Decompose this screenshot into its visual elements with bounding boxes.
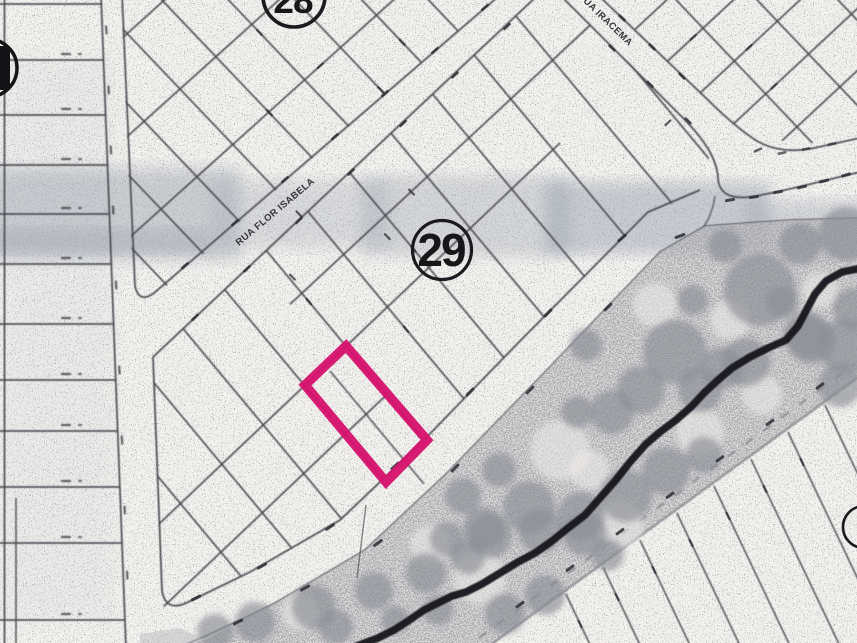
- svg-text:28: 28: [273, 0, 313, 21]
- svg-text:29: 29: [417, 224, 465, 276]
